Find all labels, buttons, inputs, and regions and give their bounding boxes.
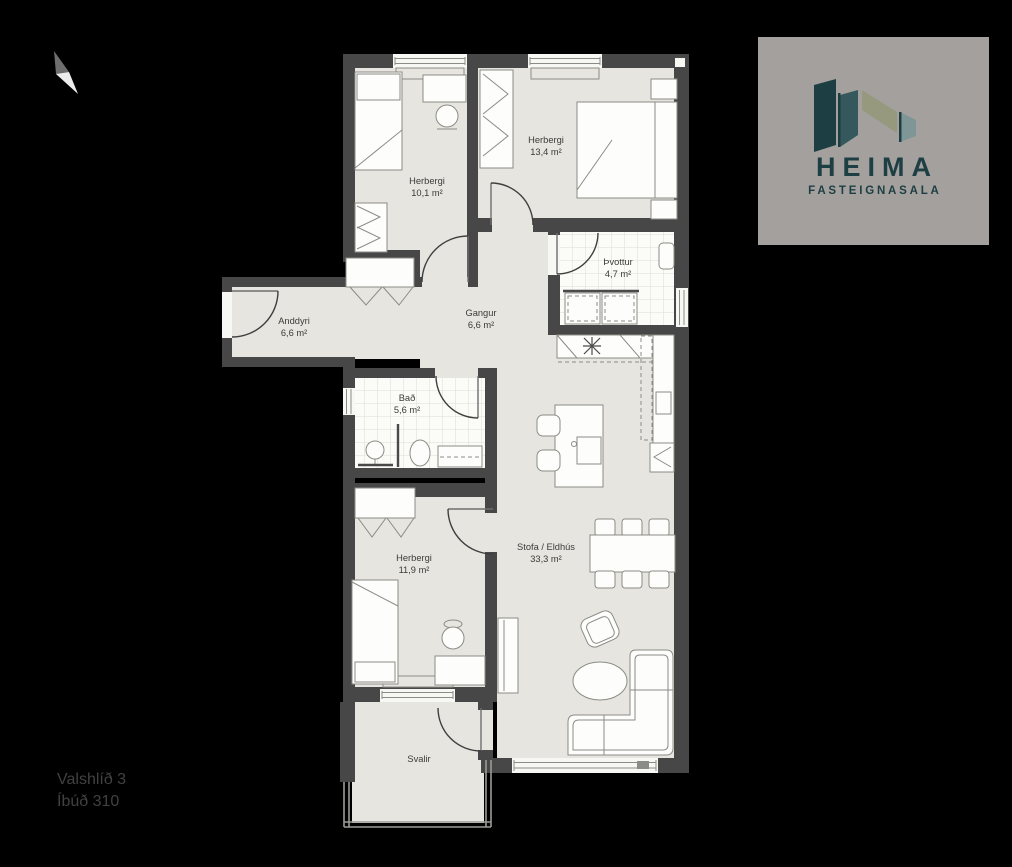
logo-brand-text: HEIMA bbox=[758, 152, 989, 183]
room-area-entrance: 6,6 m² bbox=[281, 328, 307, 338]
wardrobe bbox=[480, 70, 513, 168]
window-bathroom bbox=[343, 388, 355, 415]
unit-line: Íbúð 310 bbox=[57, 791, 126, 813]
logo-tagline-text: FASTEIGNASALA bbox=[758, 185, 989, 197]
vanity-cabinet bbox=[438, 446, 482, 467]
laundry-sink bbox=[659, 243, 674, 269]
washer bbox=[565, 293, 600, 324]
room-label-bathroom: Bað bbox=[399, 393, 416, 403]
bed bbox=[352, 580, 398, 684]
desk bbox=[423, 75, 466, 102]
window-living bbox=[512, 758, 658, 773]
fridge bbox=[650, 443, 674, 472]
room-area-bedroom2: 13,4 m² bbox=[530, 147, 562, 157]
room-label-entrance: Anddyri bbox=[278, 316, 310, 326]
bar-stool bbox=[537, 415, 560, 436]
window-laundry bbox=[676, 288, 688, 327]
wall-notch bbox=[675, 58, 685, 67]
dining-table-set bbox=[590, 519, 675, 588]
room-label-living-kitchen: Stofa / Eldhús bbox=[517, 542, 575, 552]
room-area-hallway: 6,6 m² bbox=[468, 320, 494, 330]
agency-logo-panel: HEIMA FASTEIGNASALA bbox=[758, 37, 989, 245]
room-area-laundry: 4,7 m² bbox=[605, 269, 631, 279]
room-label-hallway: Gangur bbox=[465, 308, 496, 318]
room-area-bedroom1: 10,1 m² bbox=[411, 188, 443, 198]
bed bbox=[355, 72, 402, 170]
heima-logo-icon bbox=[758, 37, 989, 245]
coffee-table bbox=[573, 662, 627, 700]
desk bbox=[435, 656, 485, 685]
room-area-living-kitchen: 33,3 m² bbox=[530, 554, 562, 564]
room-label-laundry: Þvottur bbox=[603, 257, 632, 267]
room-label-bedroom1: Herbergi bbox=[409, 176, 445, 186]
listing-address: Valshlíð 3 Íbúð 310 bbox=[57, 769, 126, 813]
address-line: Valshlíð 3 bbox=[57, 769, 126, 791]
screenshot-root: Herbergi 10,1 m² Herbergi 13,4 m² Þvottu… bbox=[0, 0, 1012, 867]
room-label-bedroom2: Herbergi bbox=[528, 135, 564, 145]
toilet bbox=[410, 440, 430, 466]
dryer bbox=[602, 293, 637, 324]
tv-bench bbox=[498, 618, 518, 693]
room-label-balcony: Svalir bbox=[407, 754, 430, 764]
cooktop-symbol bbox=[583, 337, 601, 355]
bar-stool bbox=[537, 450, 560, 471]
room-area-bathroom: 5,6 m² bbox=[394, 405, 420, 415]
room-label-bedroom3: Herbergi bbox=[396, 553, 432, 563]
kitchen-island bbox=[555, 405, 603, 487]
wardrobe bbox=[355, 203, 387, 252]
north-arrow-icon bbox=[54, 51, 78, 94]
kitchen-counter-top bbox=[557, 335, 655, 362]
room-area-bedroom3: 11,9 m² bbox=[399, 565, 430, 575]
